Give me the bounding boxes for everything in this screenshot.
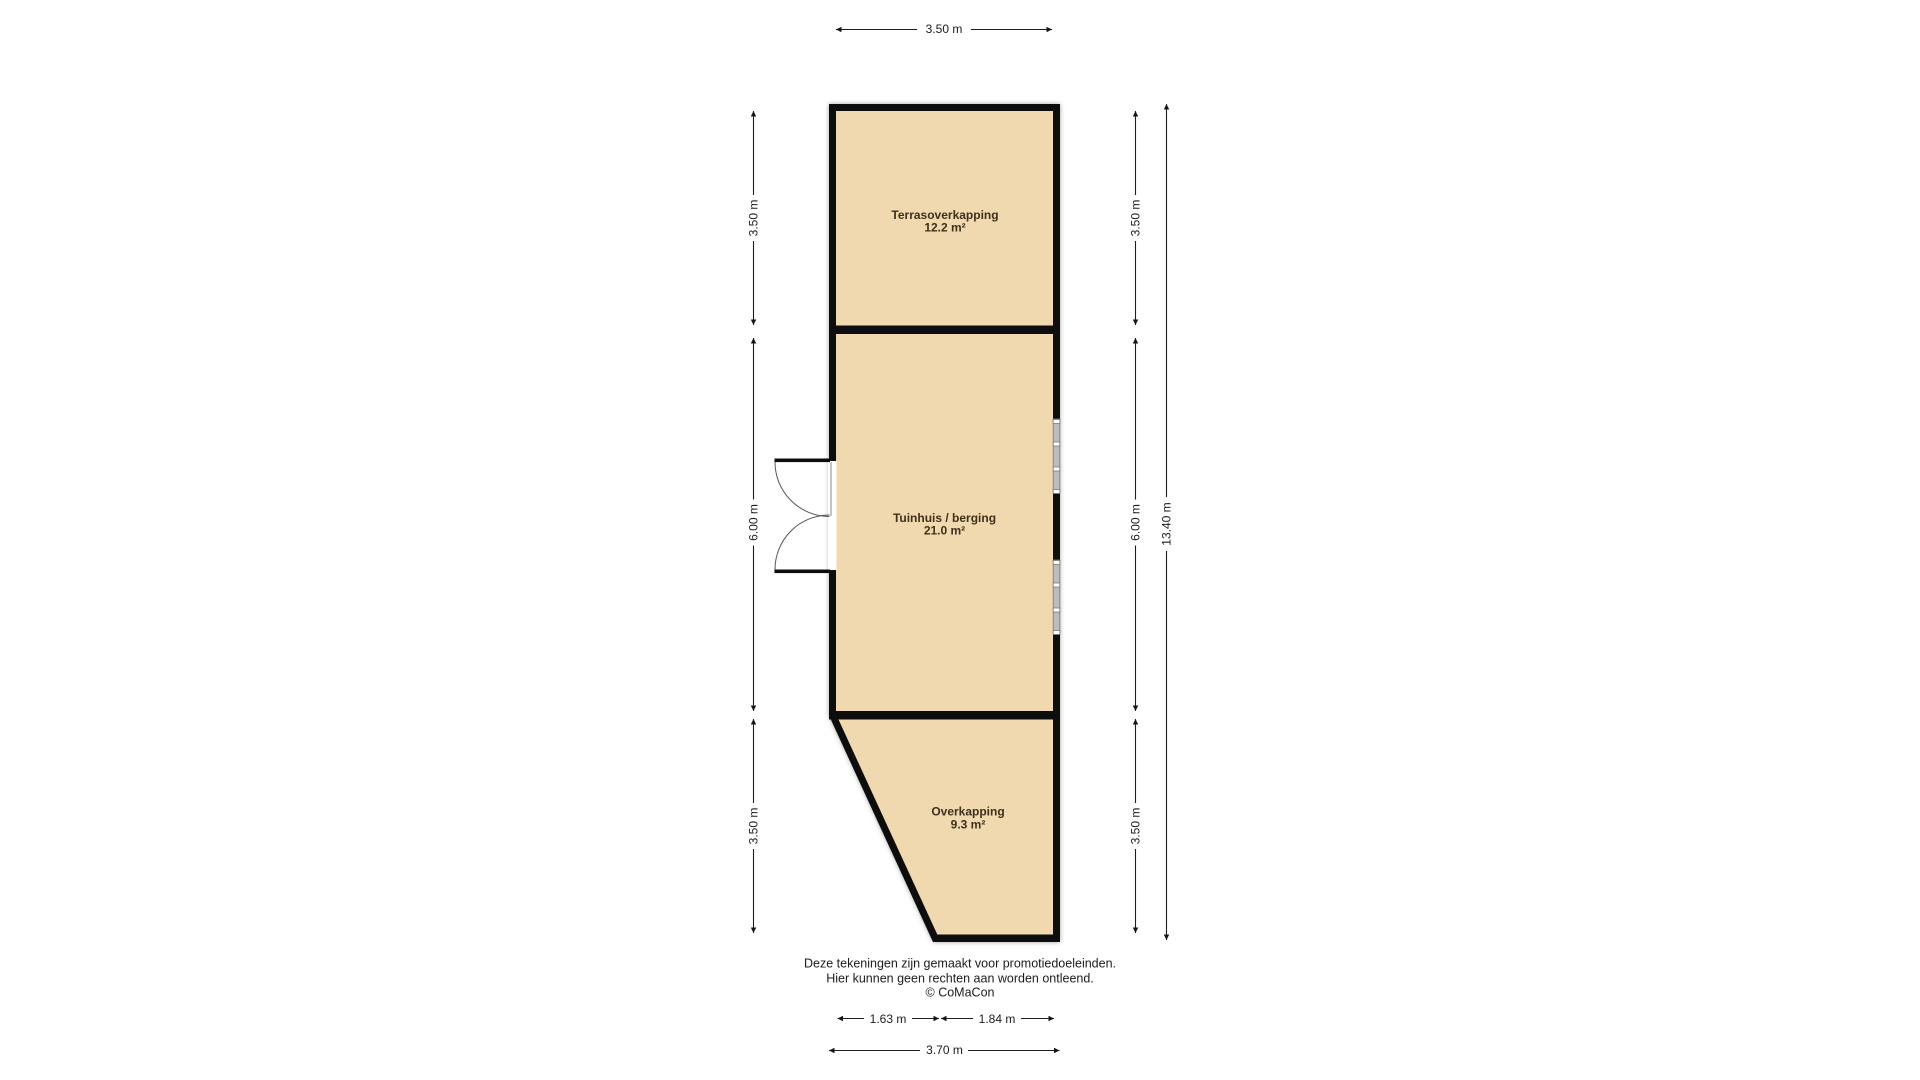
svg-text:1.63 m: 1.63 m [870,1012,907,1026]
svg-text:13.40 m: 13.40 m [1160,502,1174,545]
svg-text:3.50 m: 3.50 m [747,200,761,237]
svg-text:3.50 m: 3.50 m [747,808,761,845]
svg-text:6.00 m: 6.00 m [1129,504,1143,541]
svg-text:© CoMaCon: © CoMaCon [926,986,995,1000]
svg-text:Hier kunnen geen rechten aan w: Hier kunnen geen rechten aan worden ontl… [826,972,1094,986]
svg-text:Overkapping: Overkapping [931,805,1004,819]
svg-text:Deze tekeningen zijn gemaakt v: Deze tekeningen zijn gemaakt voor promot… [804,957,1116,971]
svg-text:3.70 m: 3.70 m [926,1043,963,1057]
svg-text:6.00 m: 6.00 m [747,504,761,541]
svg-text:9.3 m²: 9.3 m² [951,818,986,832]
svg-text:12.2 m²: 12.2 m² [924,221,965,235]
svg-text:3.50 m: 3.50 m [926,22,963,36]
svg-text:21.0 m²: 21.0 m² [924,524,965,538]
svg-text:1.84 m: 1.84 m [979,1012,1016,1026]
svg-text:3.50 m: 3.50 m [1129,808,1143,845]
svg-text:3.50 m: 3.50 m [1129,200,1143,237]
